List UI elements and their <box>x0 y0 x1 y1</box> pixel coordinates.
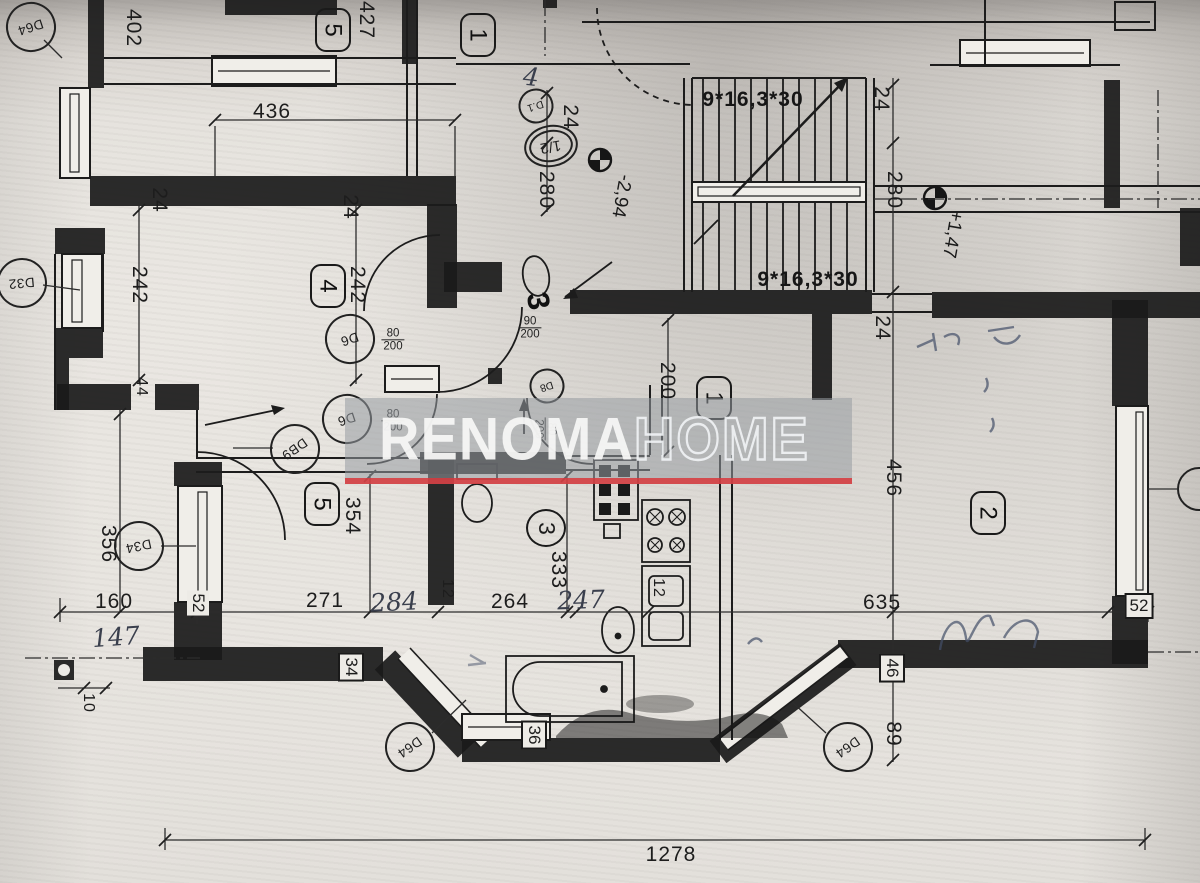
handwritten-247: 247 <box>557 585 606 616</box>
handwritten-147: 147 <box>91 621 141 653</box>
dim-456: 456 <box>881 459 905 497</box>
dim-354: 354 <box>340 497 364 535</box>
door-label-d32: D32 <box>0 256 49 310</box>
door-label-d6-upper: D6 <box>318 307 381 370</box>
dim-12-a: 12 <box>438 579 456 599</box>
watermark-banner: RENOMA HOME <box>345 398 852 484</box>
dim-52-right: 52 <box>1125 593 1154 619</box>
doorsize-d6-upper: 80200 <box>381 327 404 352</box>
dim-280-a: 280 <box>534 171 558 209</box>
dim-10: 10 <box>79 693 97 713</box>
dim-427: 427 <box>354 1 378 39</box>
dim-280-b: 280 <box>882 171 906 209</box>
dim-24-d: 24 <box>869 86 893 111</box>
stair-number-3: 3 <box>519 289 557 312</box>
handwritten-284: 284 <box>369 586 418 617</box>
watermark-brand-light: HOME <box>634 403 810 473</box>
room-badge-4: 4 <box>310 264 346 308</box>
dim-24-e: 24 <box>870 315 894 340</box>
dim-436: 436 <box>253 100 291 124</box>
dim-333: 333 <box>546 551 570 589</box>
room-badge-3: 3 <box>526 509 566 547</box>
dim-44: 44 <box>132 377 150 397</box>
level-plus-147: +1,47 <box>937 208 967 259</box>
stair-formula-bottom: 9*16,3*30 <box>757 268 858 292</box>
door-label-d64-bottomright: D64 <box>813 712 883 782</box>
door-label-db9: DB9 <box>260 414 330 484</box>
door-label-d64-bottomleft: D64 <box>375 712 445 782</box>
dim-635: 635 <box>863 591 901 615</box>
dim-200: 200 <box>655 362 679 400</box>
dim-46: 46 <box>879 654 905 683</box>
room-badge-1-top: 1 <box>460 13 496 57</box>
dim-24-c: 24 <box>558 104 582 129</box>
door-label-d64-topleft: D64 <box>0 0 63 59</box>
dim-24-a: 24 <box>147 187 171 212</box>
scanned-floorplan-page: 4364274022424242242442428024280242004563… <box>0 0 1200 883</box>
dim-160: 160 <box>95 590 133 614</box>
dim-52-left: 52 <box>187 591 209 616</box>
room-badge-5-top: 5 <box>315 8 351 52</box>
dim-271: 271 <box>306 589 344 613</box>
dim-242-b: 242 <box>345 266 369 304</box>
dim-34: 34 <box>338 653 364 682</box>
dim-24-b: 24 <box>338 194 362 219</box>
dim-1278: 1278 <box>646 843 697 867</box>
room-badge-5: 5 <box>304 482 340 526</box>
dim-242-a: 242 <box>127 266 151 304</box>
stair-formula-top: 9*16,3*30 <box>702 88 803 112</box>
watermark-brand-bold: RENOMA <box>379 403 634 473</box>
room-badge-2: 2 <box>970 491 1006 535</box>
doorsize-entrance: 90200 <box>518 315 541 340</box>
dim-264: 264 <box>491 590 529 614</box>
dim-12-b: 12 <box>649 578 667 598</box>
level-minus-294: -2,94 <box>606 173 635 219</box>
dim-89: 89 <box>881 721 905 746</box>
dim-36: 36 <box>521 721 547 750</box>
marker-half: 1/2 <box>527 126 576 165</box>
dim-402: 402 <box>121 9 145 47</box>
